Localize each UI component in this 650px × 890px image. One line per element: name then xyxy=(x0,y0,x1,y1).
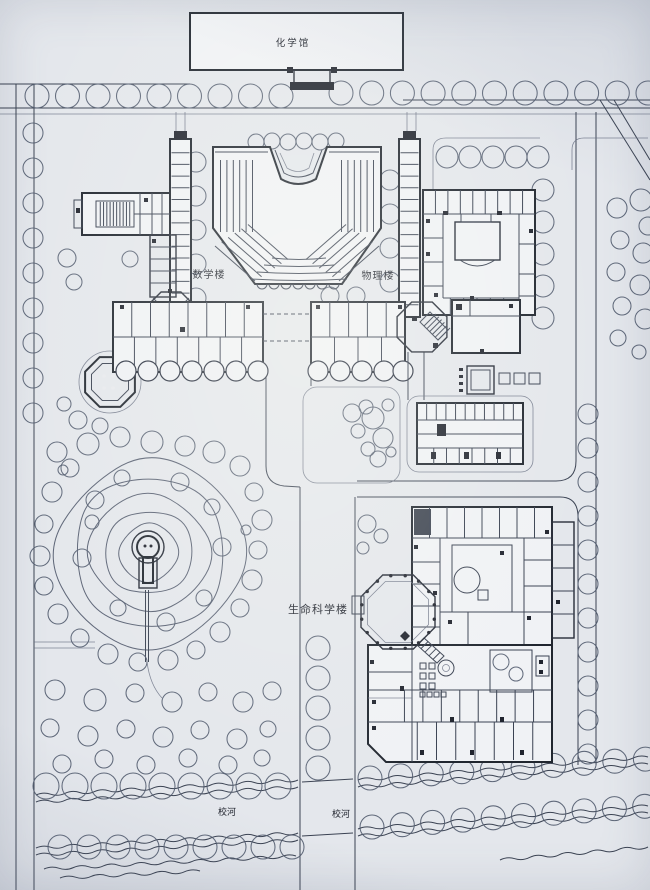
lawn xyxy=(303,387,400,483)
chemistry-hall-label: 化学馆 xyxy=(276,37,311,49)
river-label-right: 校河 xyxy=(332,808,350,820)
site-plan-drawing: 化学馆 数学楼 物理楼 生命科学楼 校河 校河 xyxy=(0,0,650,890)
plaza xyxy=(467,366,540,394)
physics-complex xyxy=(423,190,535,315)
math-building-label: 数学楼 xyxy=(193,268,226,281)
left-tower xyxy=(170,131,191,317)
physics-wing xyxy=(308,302,413,381)
covered-walkway xyxy=(263,314,311,341)
life-science-upper xyxy=(412,507,574,645)
math-wing xyxy=(113,302,268,381)
hill-contours xyxy=(53,458,246,650)
chemistry-building xyxy=(190,13,403,90)
physics-building-label: 物理楼 xyxy=(362,269,395,282)
life-science-label: 生命科学楼 xyxy=(288,602,348,616)
mid-building xyxy=(407,396,533,472)
life-science-lower xyxy=(368,631,552,762)
auditorium-hall xyxy=(213,147,381,289)
entrance-steps xyxy=(290,82,334,90)
observatory-tower xyxy=(132,531,164,698)
right-tower xyxy=(399,131,420,317)
river-label-left: 校河 xyxy=(218,806,236,818)
site-plan-page: 化学馆 数学楼 物理楼 生命科学楼 校河 校河 xyxy=(0,0,650,890)
math-west-block xyxy=(74,193,170,235)
